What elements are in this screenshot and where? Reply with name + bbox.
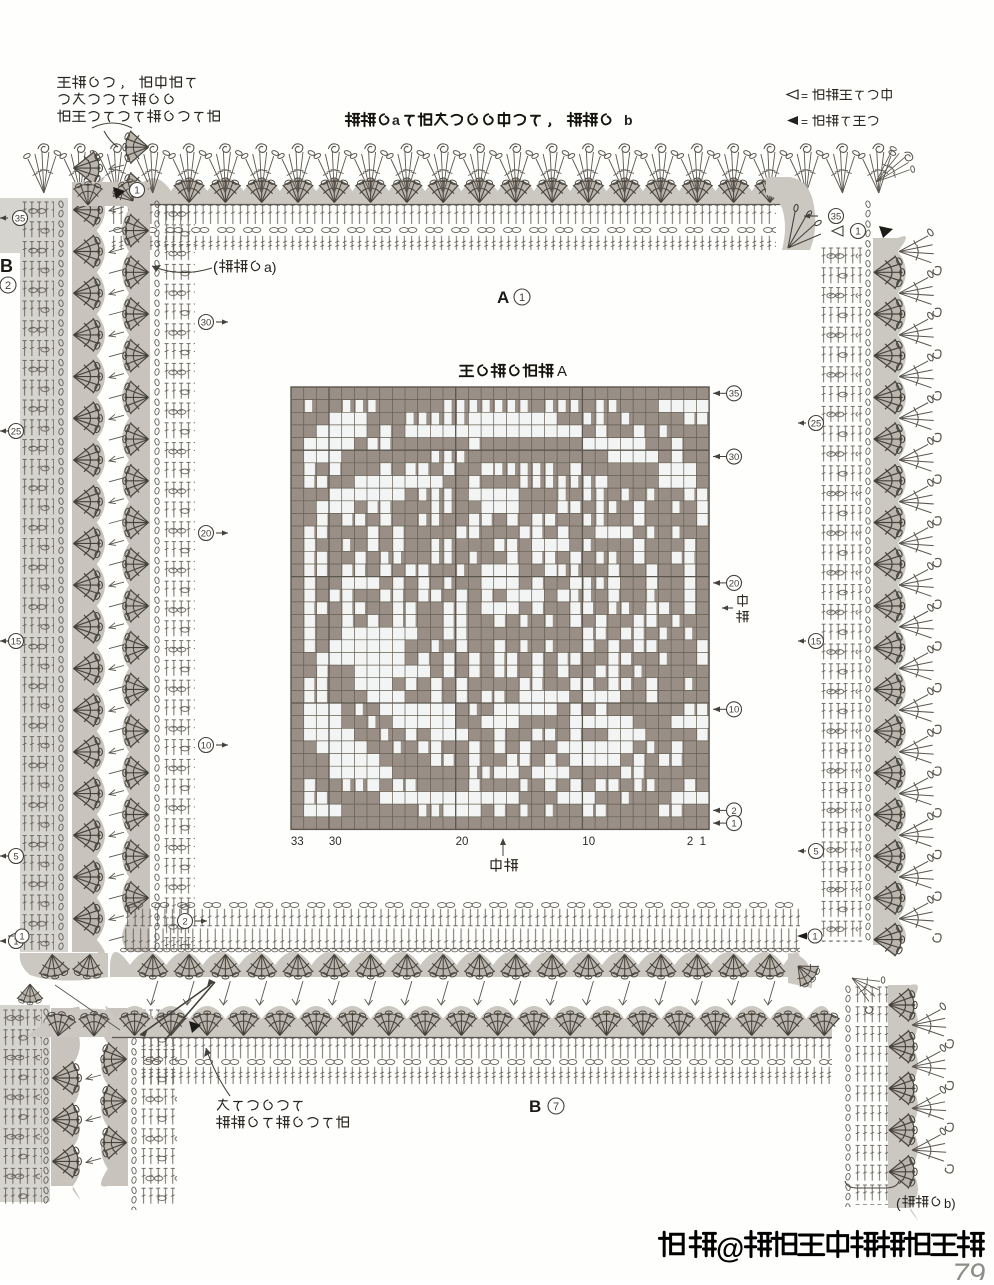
svg-text:1: 1 xyxy=(731,819,736,830)
svg-text:15: 15 xyxy=(11,636,22,647)
svg-text:15: 15 xyxy=(811,636,822,647)
svg-text:(: ( xyxy=(896,1195,901,1211)
svg-text:35: 35 xyxy=(15,213,26,224)
svg-text:B: B xyxy=(529,1097,541,1116)
svg-text:20: 20 xyxy=(201,528,212,539)
svg-text:a: a xyxy=(392,112,400,128)
svg-text:@: @ xyxy=(716,1233,744,1265)
svg-text:1: 1 xyxy=(134,186,140,197)
svg-text:=: = xyxy=(801,89,808,103)
svg-text:20: 20 xyxy=(729,578,740,589)
svg-text:30: 30 xyxy=(201,317,212,328)
svg-text:2: 2 xyxy=(687,836,693,848)
svg-text:B: B xyxy=(0,256,13,276)
svg-text:10: 10 xyxy=(582,836,595,848)
svg-text:1: 1 xyxy=(519,292,525,304)
svg-text:A: A xyxy=(557,363,567,380)
svg-text:1: 1 xyxy=(19,931,24,942)
svg-text:1: 1 xyxy=(855,227,861,238)
svg-text:A: A xyxy=(497,288,509,307)
svg-text:1: 1 xyxy=(812,931,817,942)
svg-text:2: 2 xyxy=(182,916,187,927)
svg-text:(: ( xyxy=(213,259,218,276)
svg-text:79: 79 xyxy=(952,1258,986,1280)
svg-text:5: 5 xyxy=(813,846,818,857)
svg-text:35: 35 xyxy=(831,211,842,222)
svg-text:35: 35 xyxy=(729,389,740,400)
svg-text:33: 33 xyxy=(291,836,304,848)
svg-text:7: 7 xyxy=(553,1101,559,1113)
svg-text:30: 30 xyxy=(329,836,342,848)
svg-text:a): a) xyxy=(264,259,276,275)
svg-text:=: = xyxy=(801,115,808,129)
svg-text:1: 1 xyxy=(700,836,706,848)
svg-text:2: 2 xyxy=(5,280,11,292)
svg-text:10: 10 xyxy=(201,740,212,751)
svg-text:30: 30 xyxy=(729,452,740,463)
svg-text:25: 25 xyxy=(11,426,22,437)
svg-text:b): b) xyxy=(944,1196,956,1211)
svg-text:25: 25 xyxy=(811,418,822,429)
svg-text:5: 5 xyxy=(13,851,18,862)
svg-text:b: b xyxy=(624,112,633,128)
svg-text:10: 10 xyxy=(729,705,740,716)
svg-text:20: 20 xyxy=(456,836,469,848)
